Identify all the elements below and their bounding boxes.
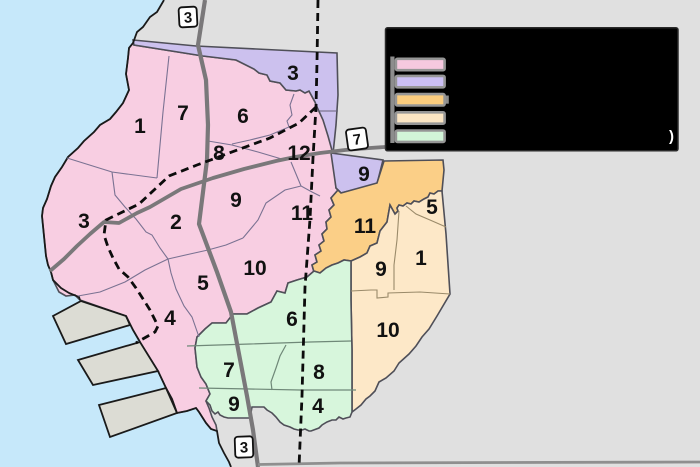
svg-text:3: 3	[78, 210, 90, 233]
svg-text:9: 9	[230, 189, 242, 212]
svg-text:): )	[669, 128, 674, 145]
svg-text:6: 6	[286, 308, 298, 331]
svg-text:8: 8	[313, 361, 325, 384]
svg-text:5: 5	[197, 272, 209, 295]
svg-text:11: 11	[291, 202, 314, 225]
svg-text:6: 6	[237, 105, 249, 128]
svg-text:9: 9	[358, 163, 370, 186]
svg-text:10: 10	[243, 257, 266, 280]
svg-text:3: 3	[183, 9, 192, 26]
svg-text:12: 12	[287, 142, 310, 165]
svg-text:4: 4	[164, 307, 176, 330]
svg-text:5: 5	[426, 196, 438, 219]
svg-text:9: 9	[375, 258, 387, 281]
svg-text:1: 1	[134, 115, 146, 138]
svg-text:2: 2	[170, 211, 182, 234]
svg-text:10: 10	[376, 319, 399, 342]
svg-text:8: 8	[213, 142, 225, 165]
svg-text:9: 9	[228, 393, 240, 416]
svg-text:4: 4	[312, 395, 324, 418]
svg-text:3: 3	[240, 439, 249, 456]
svg-text:3: 3	[287, 62, 299, 85]
svg-text:11: 11	[354, 215, 377, 238]
svg-text:1: 1	[415, 247, 427, 270]
svg-text:7: 7	[223, 359, 235, 382]
svg-text:7: 7	[177, 102, 189, 125]
